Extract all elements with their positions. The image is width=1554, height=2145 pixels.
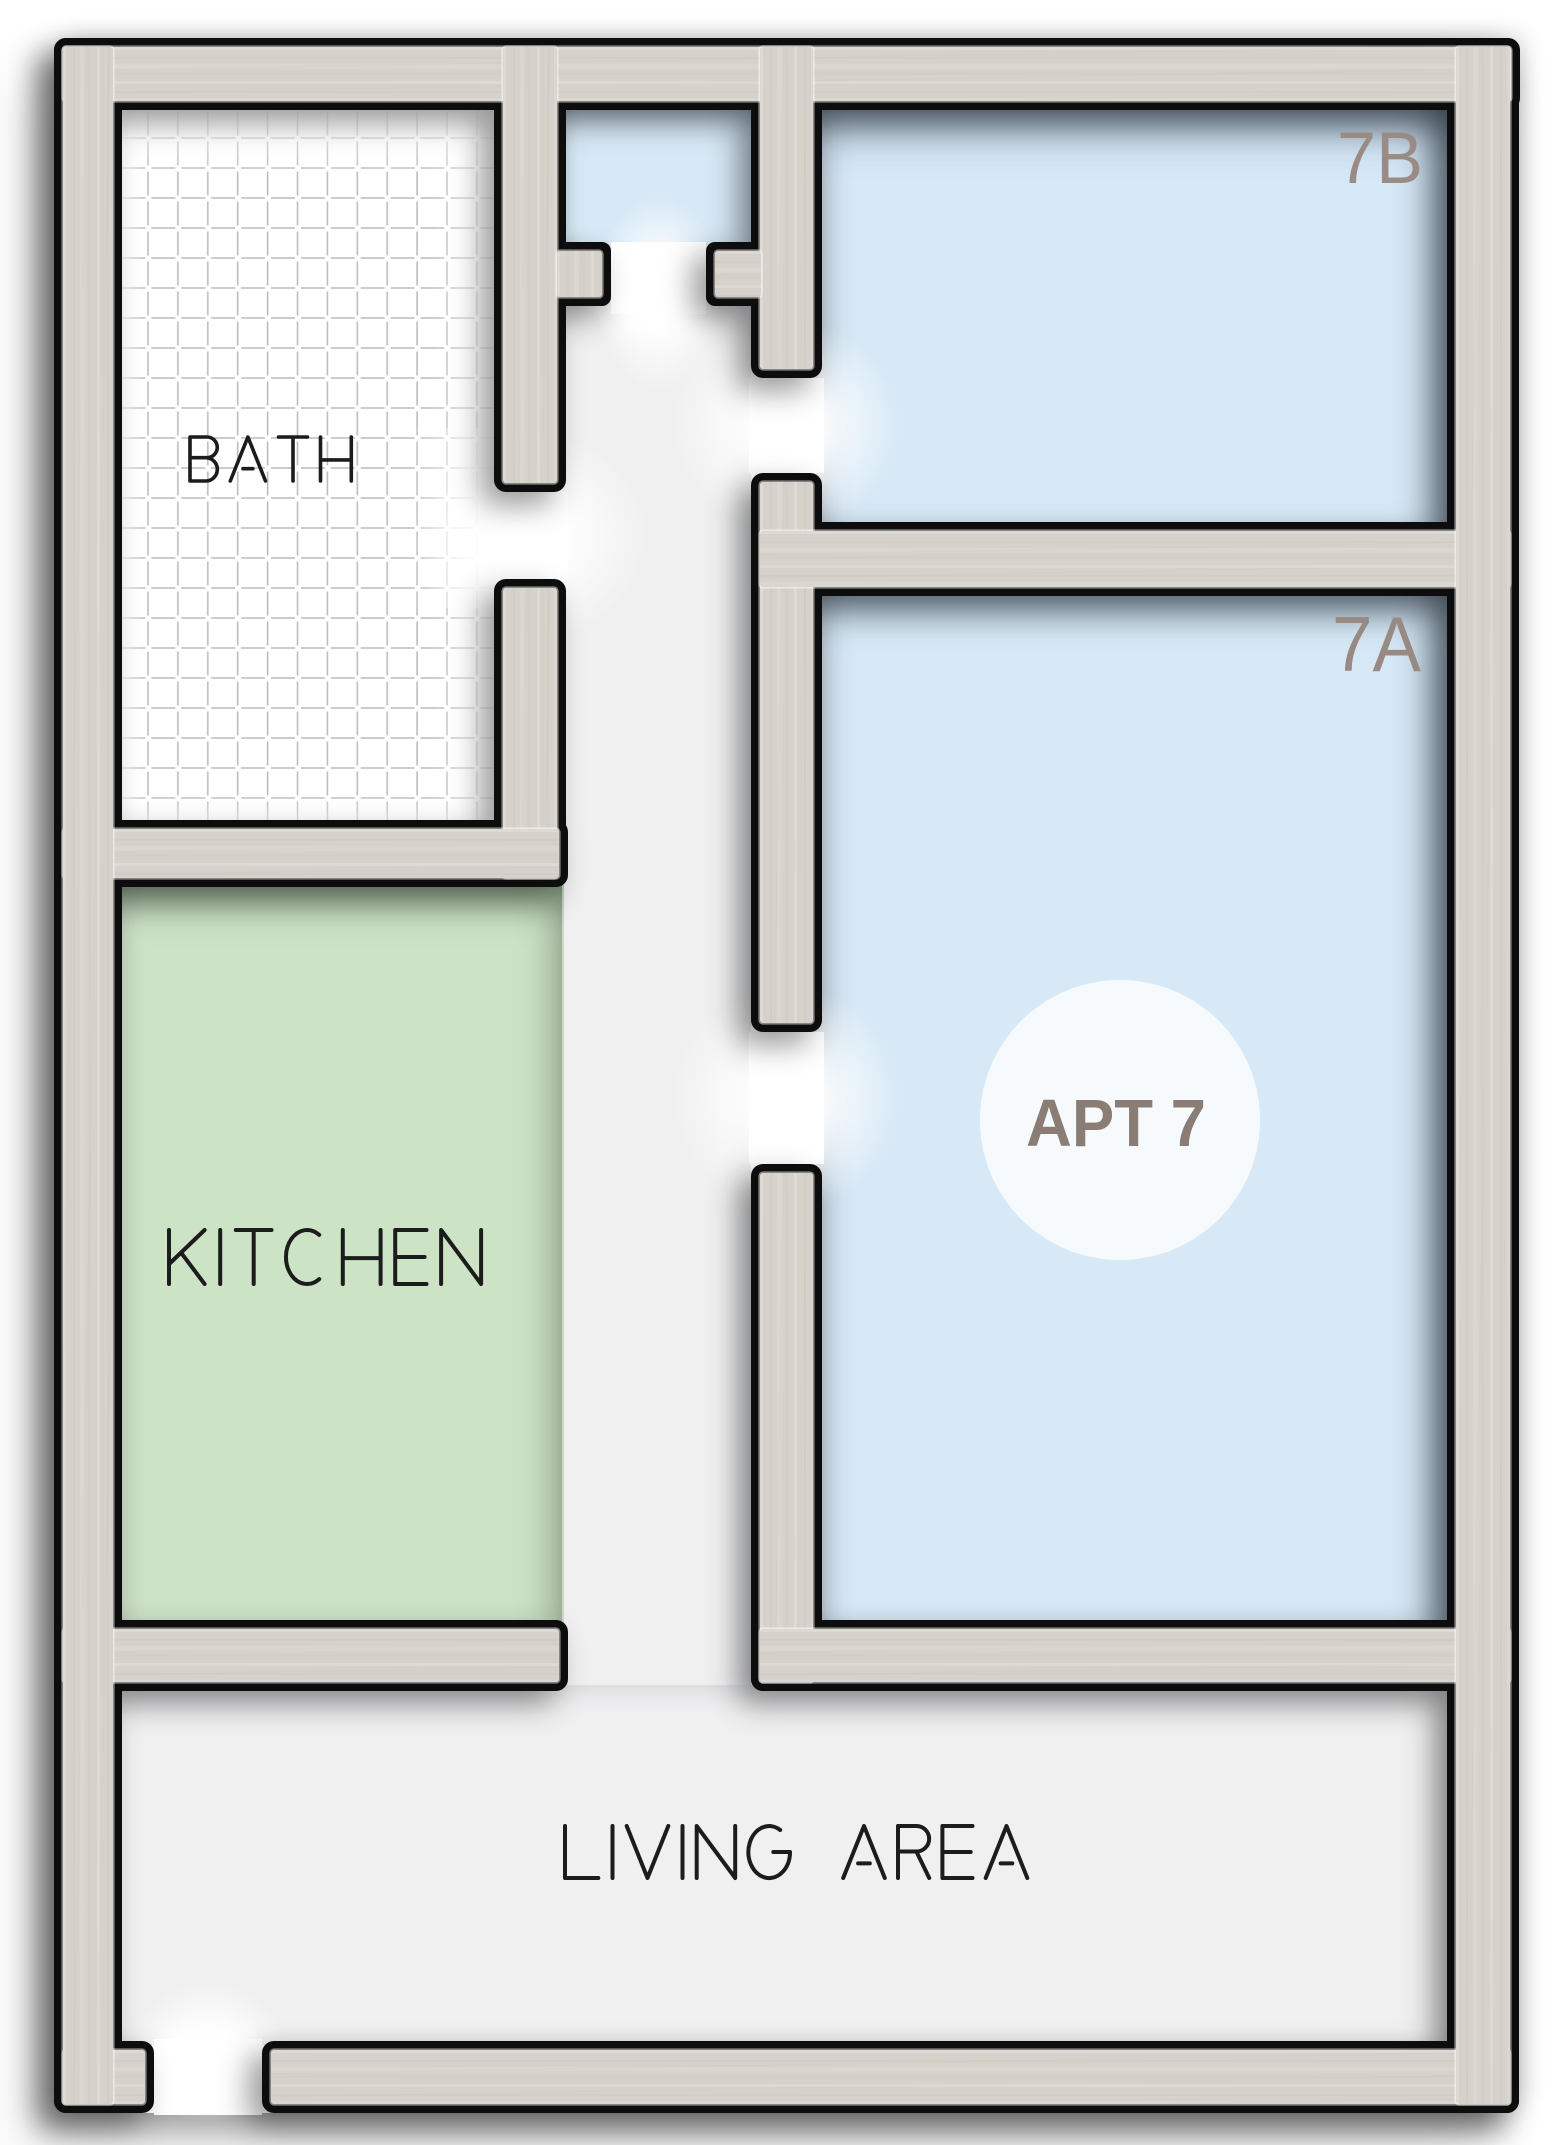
svg-text:APT 7: APT 7: [1026, 1086, 1206, 1161]
svg-text:7B: 7B: [1337, 118, 1423, 199]
svg-text:7A: 7A: [1332, 600, 1421, 688]
